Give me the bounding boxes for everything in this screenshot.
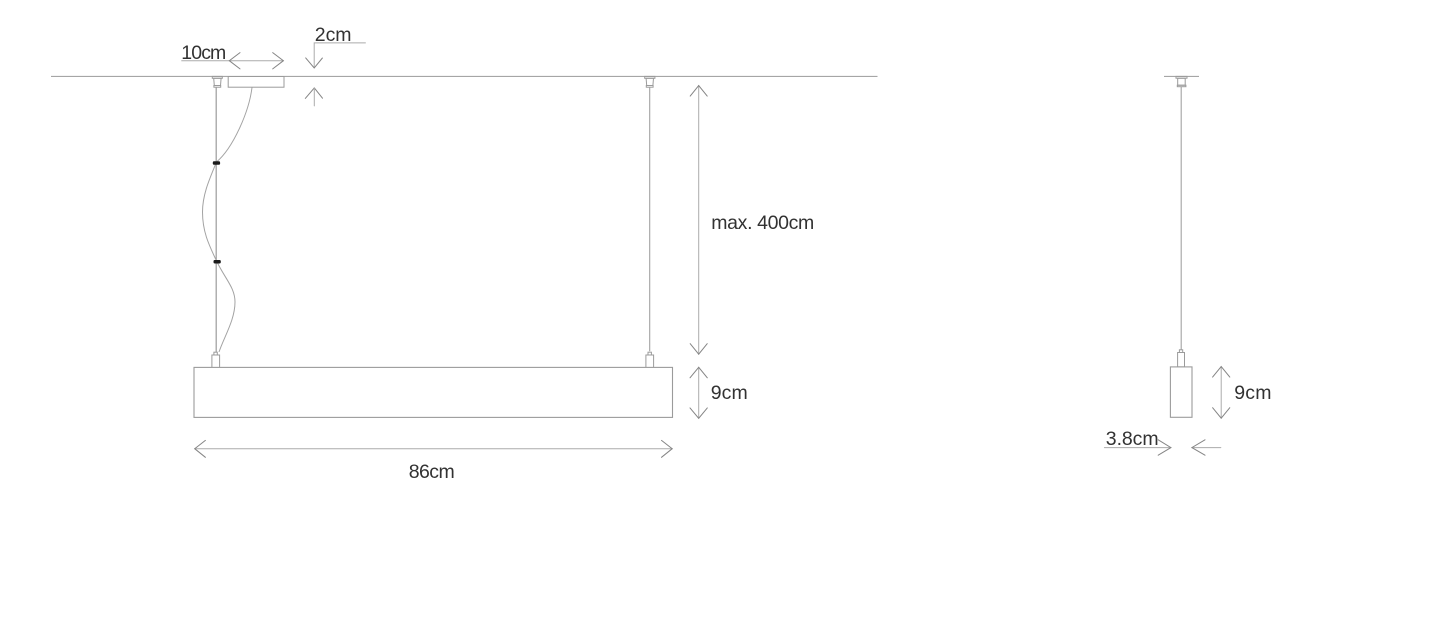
svg-text:9cm: 9cm — [711, 382, 748, 404]
svg-text:86cm: 86cm — [409, 461, 455, 483]
svg-text:9cm: 9cm — [1234, 382, 1271, 404]
svg-text:max. 400cm: max. 400cm — [711, 212, 814, 234]
svg-text:3.8cm: 3.8cm — [1106, 428, 1159, 450]
